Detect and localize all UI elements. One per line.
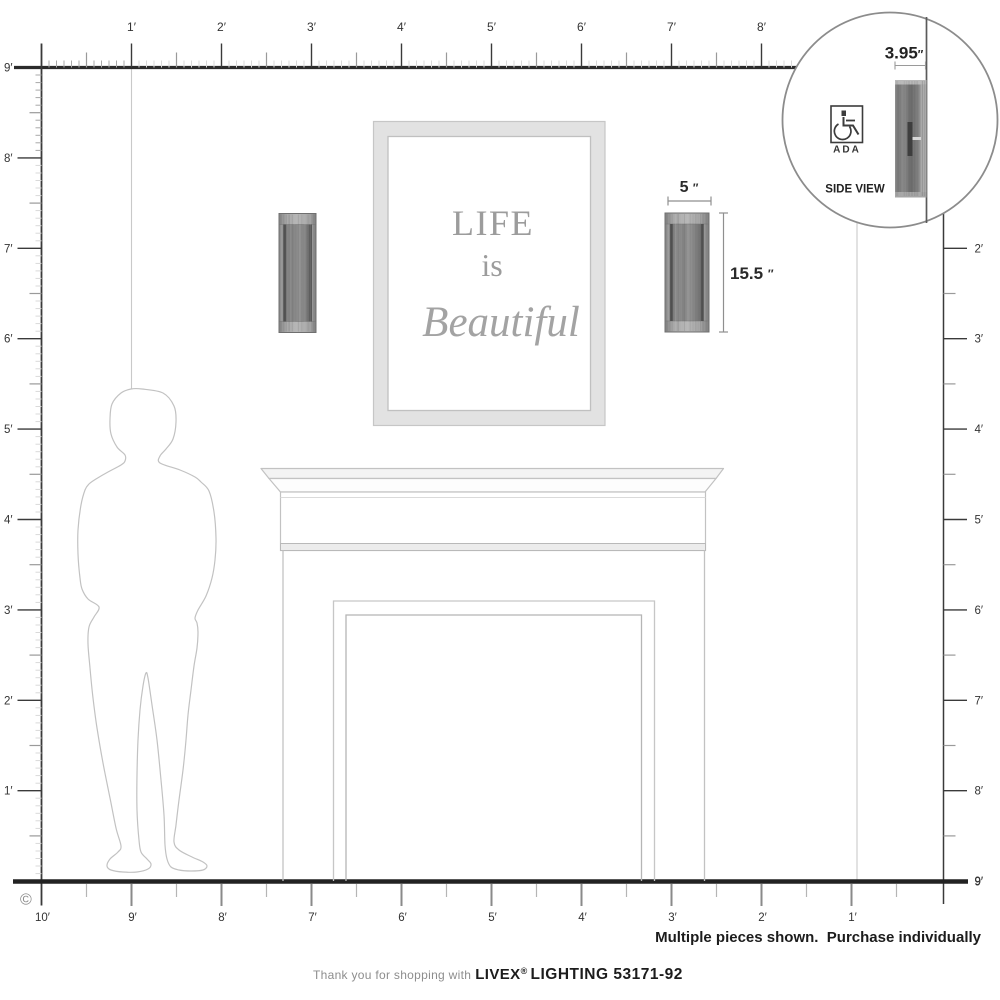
svg-text:Beautiful: Beautiful	[422, 299, 580, 346]
svg-text:2′: 2′	[975, 243, 984, 255]
svg-text:Thank you for shopping withLIV: Thank you for shopping withLIVEX®LIGHTIN…	[313, 966, 683, 983]
svg-text:is: is	[481, 247, 502, 283]
svg-text:ADA: ADA	[833, 145, 861, 156]
svg-text:7′: 7′	[667, 20, 677, 34]
svg-text:2′: 2′	[4, 695, 13, 707]
svg-text:2′: 2′	[217, 20, 227, 34]
svg-text:Multiple pieces shown. Purcha: Multiple pieces shown. Purchase individu…	[655, 929, 982, 946]
svg-text:©: ©	[20, 892, 32, 909]
svg-text:8′: 8′	[4, 153, 13, 165]
svg-text:8′: 8′	[757, 20, 767, 34]
svg-text:9′: 9′	[128, 912, 137, 924]
svg-text:5′: 5′	[488, 912, 497, 924]
svg-text:6′: 6′	[577, 20, 587, 34]
svg-text:10′: 10′	[35, 912, 50, 924]
svg-text:7′: 7′	[4, 243, 13, 255]
svg-text:1′: 1′	[127, 20, 137, 34]
svg-text:3′: 3′	[4, 605, 13, 617]
svg-text:8′: 8′	[218, 912, 227, 924]
svg-text:7′: 7′	[975, 695, 984, 707]
svg-text:4′: 4′	[578, 912, 587, 924]
svg-text:7′: 7′	[308, 912, 317, 924]
svg-text:4′: 4′	[975, 424, 984, 436]
svg-text:3′: 3′	[307, 20, 317, 34]
svg-text:1′: 1′	[848, 912, 857, 924]
svg-text:6′: 6′	[4, 334, 13, 346]
svg-text:2′: 2′	[758, 912, 767, 924]
svg-text:6′: 6′	[975, 605, 984, 617]
svg-text:LIFE: LIFE	[452, 203, 534, 243]
svg-text:4′: 4′	[4, 515, 13, 527]
svg-text:5′: 5′	[4, 424, 13, 436]
svg-text:6′: 6′	[398, 912, 407, 924]
svg-text:4′: 4′	[397, 20, 407, 34]
svg-text:3′: 3′	[975, 334, 984, 346]
svg-text:5′: 5′	[975, 515, 984, 527]
svg-text:9′: 9′	[4, 63, 13, 75]
svg-text:5′: 5′	[487, 20, 497, 34]
svg-text:9′: 9′	[975, 877, 984, 889]
svg-text:8′: 8′	[975, 786, 984, 798]
svg-text:15.5 ″: 15.5 ″	[730, 264, 774, 283]
svg-text:1′: 1′	[4, 786, 13, 798]
svg-text:SIDE VIEW: SIDE VIEW	[825, 184, 885, 196]
svg-text:3′: 3′	[668, 912, 677, 924]
